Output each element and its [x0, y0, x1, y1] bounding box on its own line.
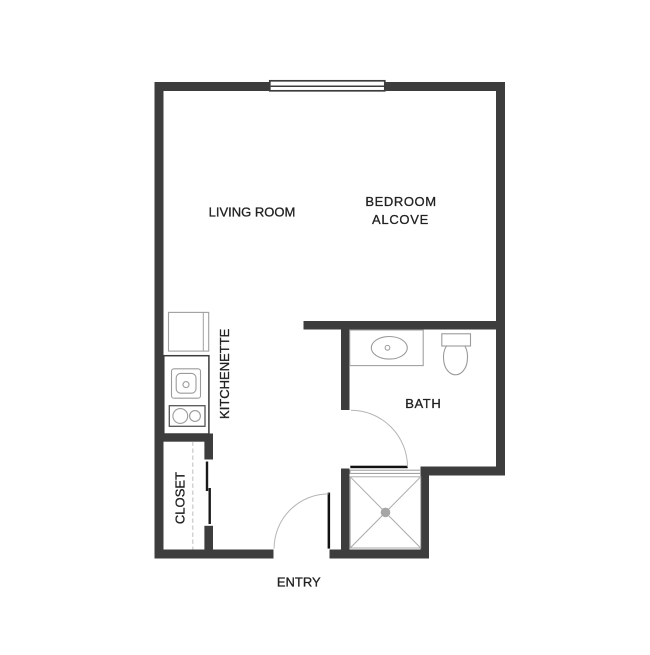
- svg-text:KITCHENETTE: KITCHENETTE: [217, 328, 232, 419]
- svg-text:LIVING ROOM: LIVING ROOM: [209, 205, 296, 220]
- svg-text:BATH: BATH: [405, 396, 441, 411]
- svg-text:ALCOVE: ALCOVE: [372, 212, 429, 227]
- svg-text:CLOSET: CLOSET: [172, 472, 187, 524]
- svg-text:BEDROOM: BEDROOM: [365, 194, 436, 209]
- svg-text:ENTRY: ENTRY: [277, 575, 321, 590]
